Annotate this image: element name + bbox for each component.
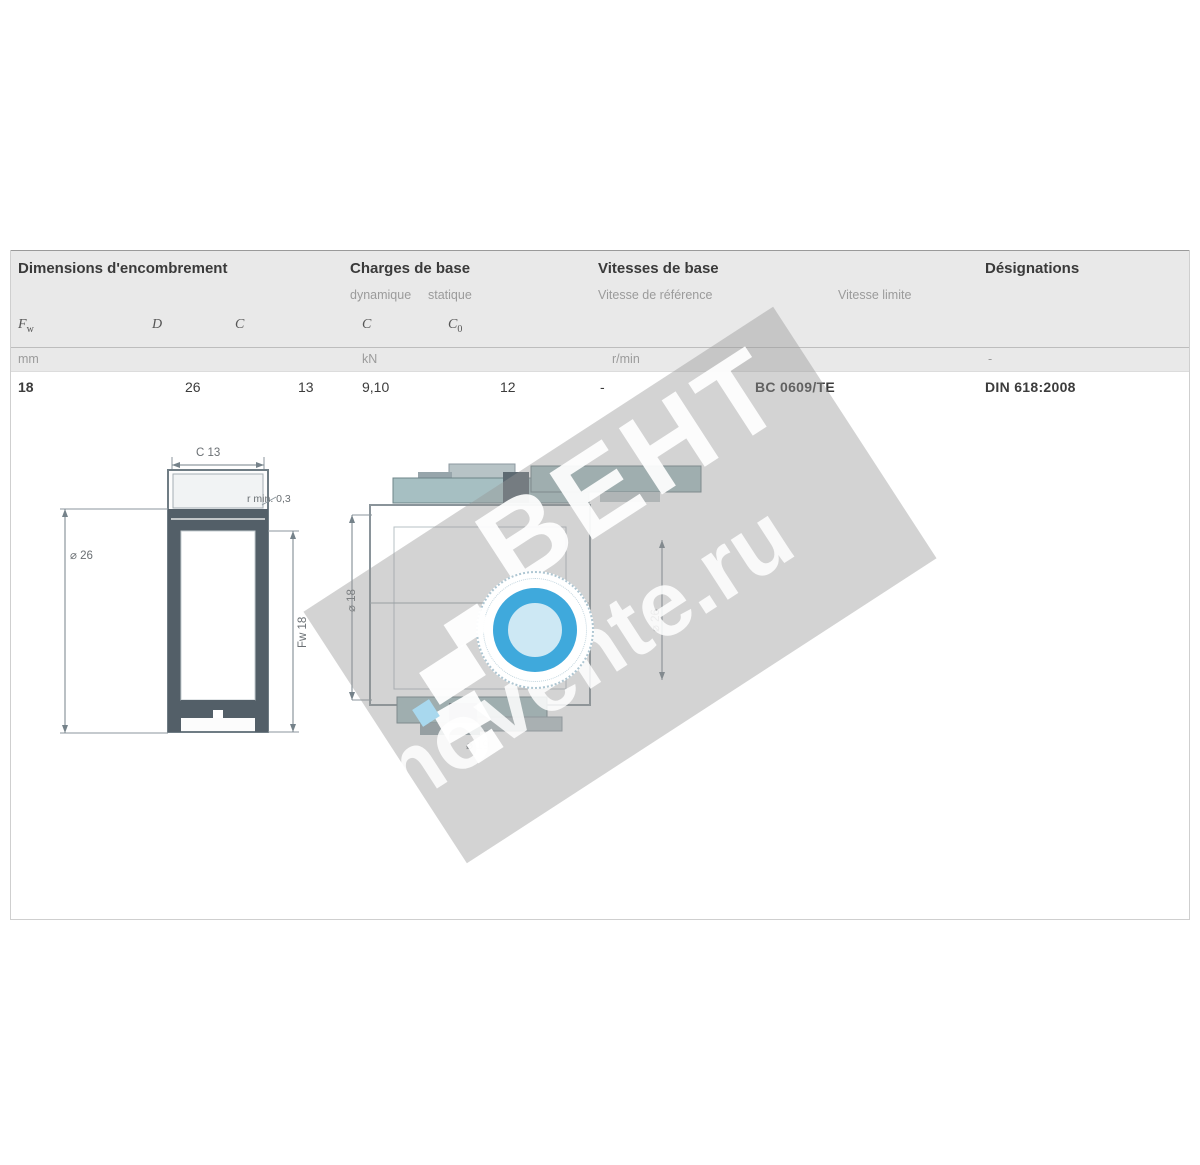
subheader-limit-speed: Vitesse limite bbox=[838, 288, 911, 302]
card-right-border bbox=[1189, 250, 1190, 920]
cell-c: 13 bbox=[298, 379, 314, 395]
catalog-page: Dimensions d'encombrement Charges de bas… bbox=[0, 0, 1200, 1165]
symbol-c0-sub: 0 bbox=[457, 324, 462, 335]
symbol-c-dynamic: C bbox=[362, 317, 371, 333]
unit-dimensions: mm bbox=[18, 352, 39, 366]
subheader-static-load: statique bbox=[428, 288, 472, 302]
cell-d: 26 bbox=[185, 379, 201, 395]
left-figure-bore-diameter-label: Fw 18 bbox=[297, 617, 309, 648]
left-figure-width-dim-label: C 13 bbox=[196, 447, 220, 459]
watermark-logo-badge bbox=[476, 571, 594, 689]
unit-designation: - bbox=[988, 352, 992, 366]
cell-dynamic-load: 9,10 bbox=[362, 379, 389, 395]
table-header-separator bbox=[11, 347, 1189, 348]
unit-loads: kN bbox=[362, 352, 377, 366]
column-group-designation: Désignations bbox=[985, 260, 1079, 277]
symbol-fw-main: F bbox=[18, 317, 27, 332]
cell-fw: 18 bbox=[18, 379, 34, 395]
left-figure-fillet-note: r min. 0,3 bbox=[247, 493, 291, 505]
table-units-separator bbox=[11, 371, 1189, 372]
cell-reference-speed: - bbox=[600, 379, 605, 395]
symbol-c: C bbox=[235, 317, 244, 333]
symbol-fw: Fw bbox=[18, 317, 34, 335]
left-figure-outer-diameter-label: ⌀ 26 bbox=[70, 548, 93, 562]
column-group-loads: Charges de base bbox=[350, 260, 470, 277]
symbol-fw-sub: w bbox=[27, 324, 34, 335]
symbol-c0-main: C bbox=[448, 317, 457, 332]
column-group-dimensions: Dimensions d'encombrement bbox=[18, 260, 227, 277]
subheader-dynamic-load: dynamique bbox=[350, 288, 411, 302]
cell-static-load: 12 bbox=[500, 379, 516, 395]
card-bottom-border bbox=[10, 919, 1190, 920]
column-group-speeds: Vitesses de base bbox=[598, 260, 719, 277]
subheader-reference-speed: Vitesse de référence bbox=[598, 288, 712, 302]
symbol-d: D bbox=[152, 317, 162, 333]
symbol-c0: C0 bbox=[448, 317, 462, 335]
unit-speeds: r/min bbox=[612, 352, 640, 366]
cell-standard: DIN 618:2008 bbox=[985, 379, 1076, 395]
watermark-logo-ring bbox=[493, 588, 577, 672]
